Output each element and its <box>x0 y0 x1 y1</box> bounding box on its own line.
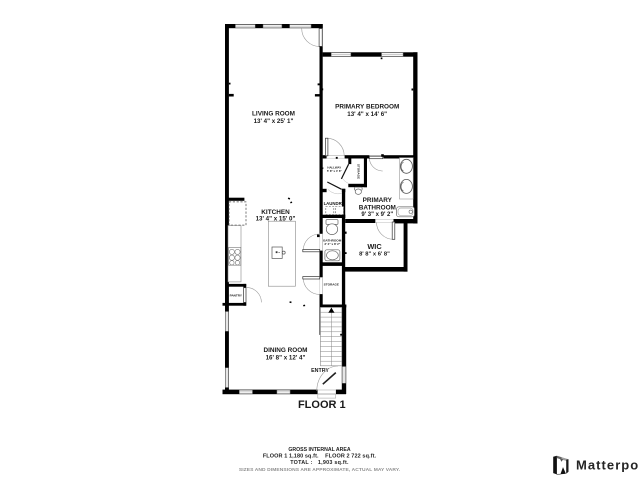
svg-text:DINING ROOM: DINING ROOM <box>263 347 307 354</box>
svg-text:BATHROOM: BATHROOM <box>359 204 396 211</box>
svg-text:SIZES AND DIMENSIONS ARE APPRO: SIZES AND DIMENSIONS ARE APPROXIMATE, AC… <box>239 467 401 473</box>
svg-text:PRIMARY BEDROOM: PRIMARY BEDROOM <box>335 104 399 111</box>
svg-text:STORAGE: STORAGE <box>324 282 339 286</box>
svg-text:PRIMARY: PRIMARY <box>363 197 393 204</box>
svg-text:13' 4" x 14' 6": 13' 4" x 14' 6" <box>347 111 387 118</box>
svg-text:TOTAL : 1,903 sq.ft.: TOTAL : 1,903 sq.ft. <box>290 460 349 466</box>
svg-text:LAUNDRY: LAUNDRY <box>324 201 345 206</box>
svg-text:FLOOR 1: FLOOR 1 <box>298 399 346 411</box>
svg-text:3' 4" x 8' 2": 3' 4" x 8' 2" <box>324 242 341 246</box>
svg-text:GROSS INTERNAL AREA: GROSS INTERNAL AREA <box>288 447 351 453</box>
svg-text:WIC: WIC <box>367 242 382 251</box>
svg-text:PANTRY: PANTRY <box>230 294 243 298</box>
svg-text:FLOOR 1 1,180 sq.ft. FLOOR: FLOOR 1 1,180 sq.ft. FLOOR 2 722 sq.ft. <box>263 454 377 460</box>
svg-text:16' 8" x 12' 4": 16' 8" x 12' 4" <box>266 354 306 361</box>
svg-text:LIVING ROOM: LIVING ROOM <box>252 111 295 118</box>
svg-text:8' 8" x 6' 8": 8' 8" x 6' 8" <box>359 252 390 258</box>
svg-text:STORAGE: STORAGE <box>357 164 361 179</box>
svg-text:9' 3" x 9' 2": 9' 3" x 9' 2" <box>361 212 393 218</box>
svg-text:ENTRY: ENTRY <box>311 368 329 374</box>
svg-text:Matterport: Matterport <box>576 457 640 472</box>
svg-text:13' 4" x 25' 1": 13' 4" x 25' 1" <box>254 118 294 125</box>
svg-text:5' 8" x 4' 6": 5' 8" x 4' 6" <box>327 169 343 173</box>
